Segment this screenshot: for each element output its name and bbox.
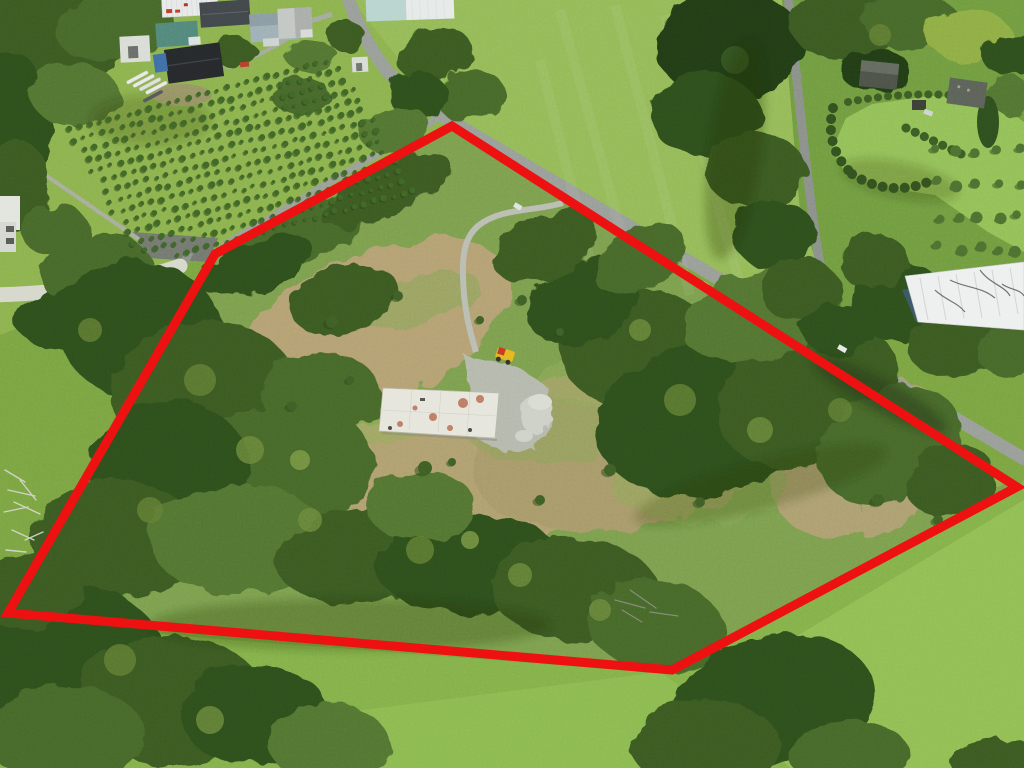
aerial-photo-figure xyxy=(0,0,1024,768)
aerial-photo xyxy=(0,0,1024,768)
